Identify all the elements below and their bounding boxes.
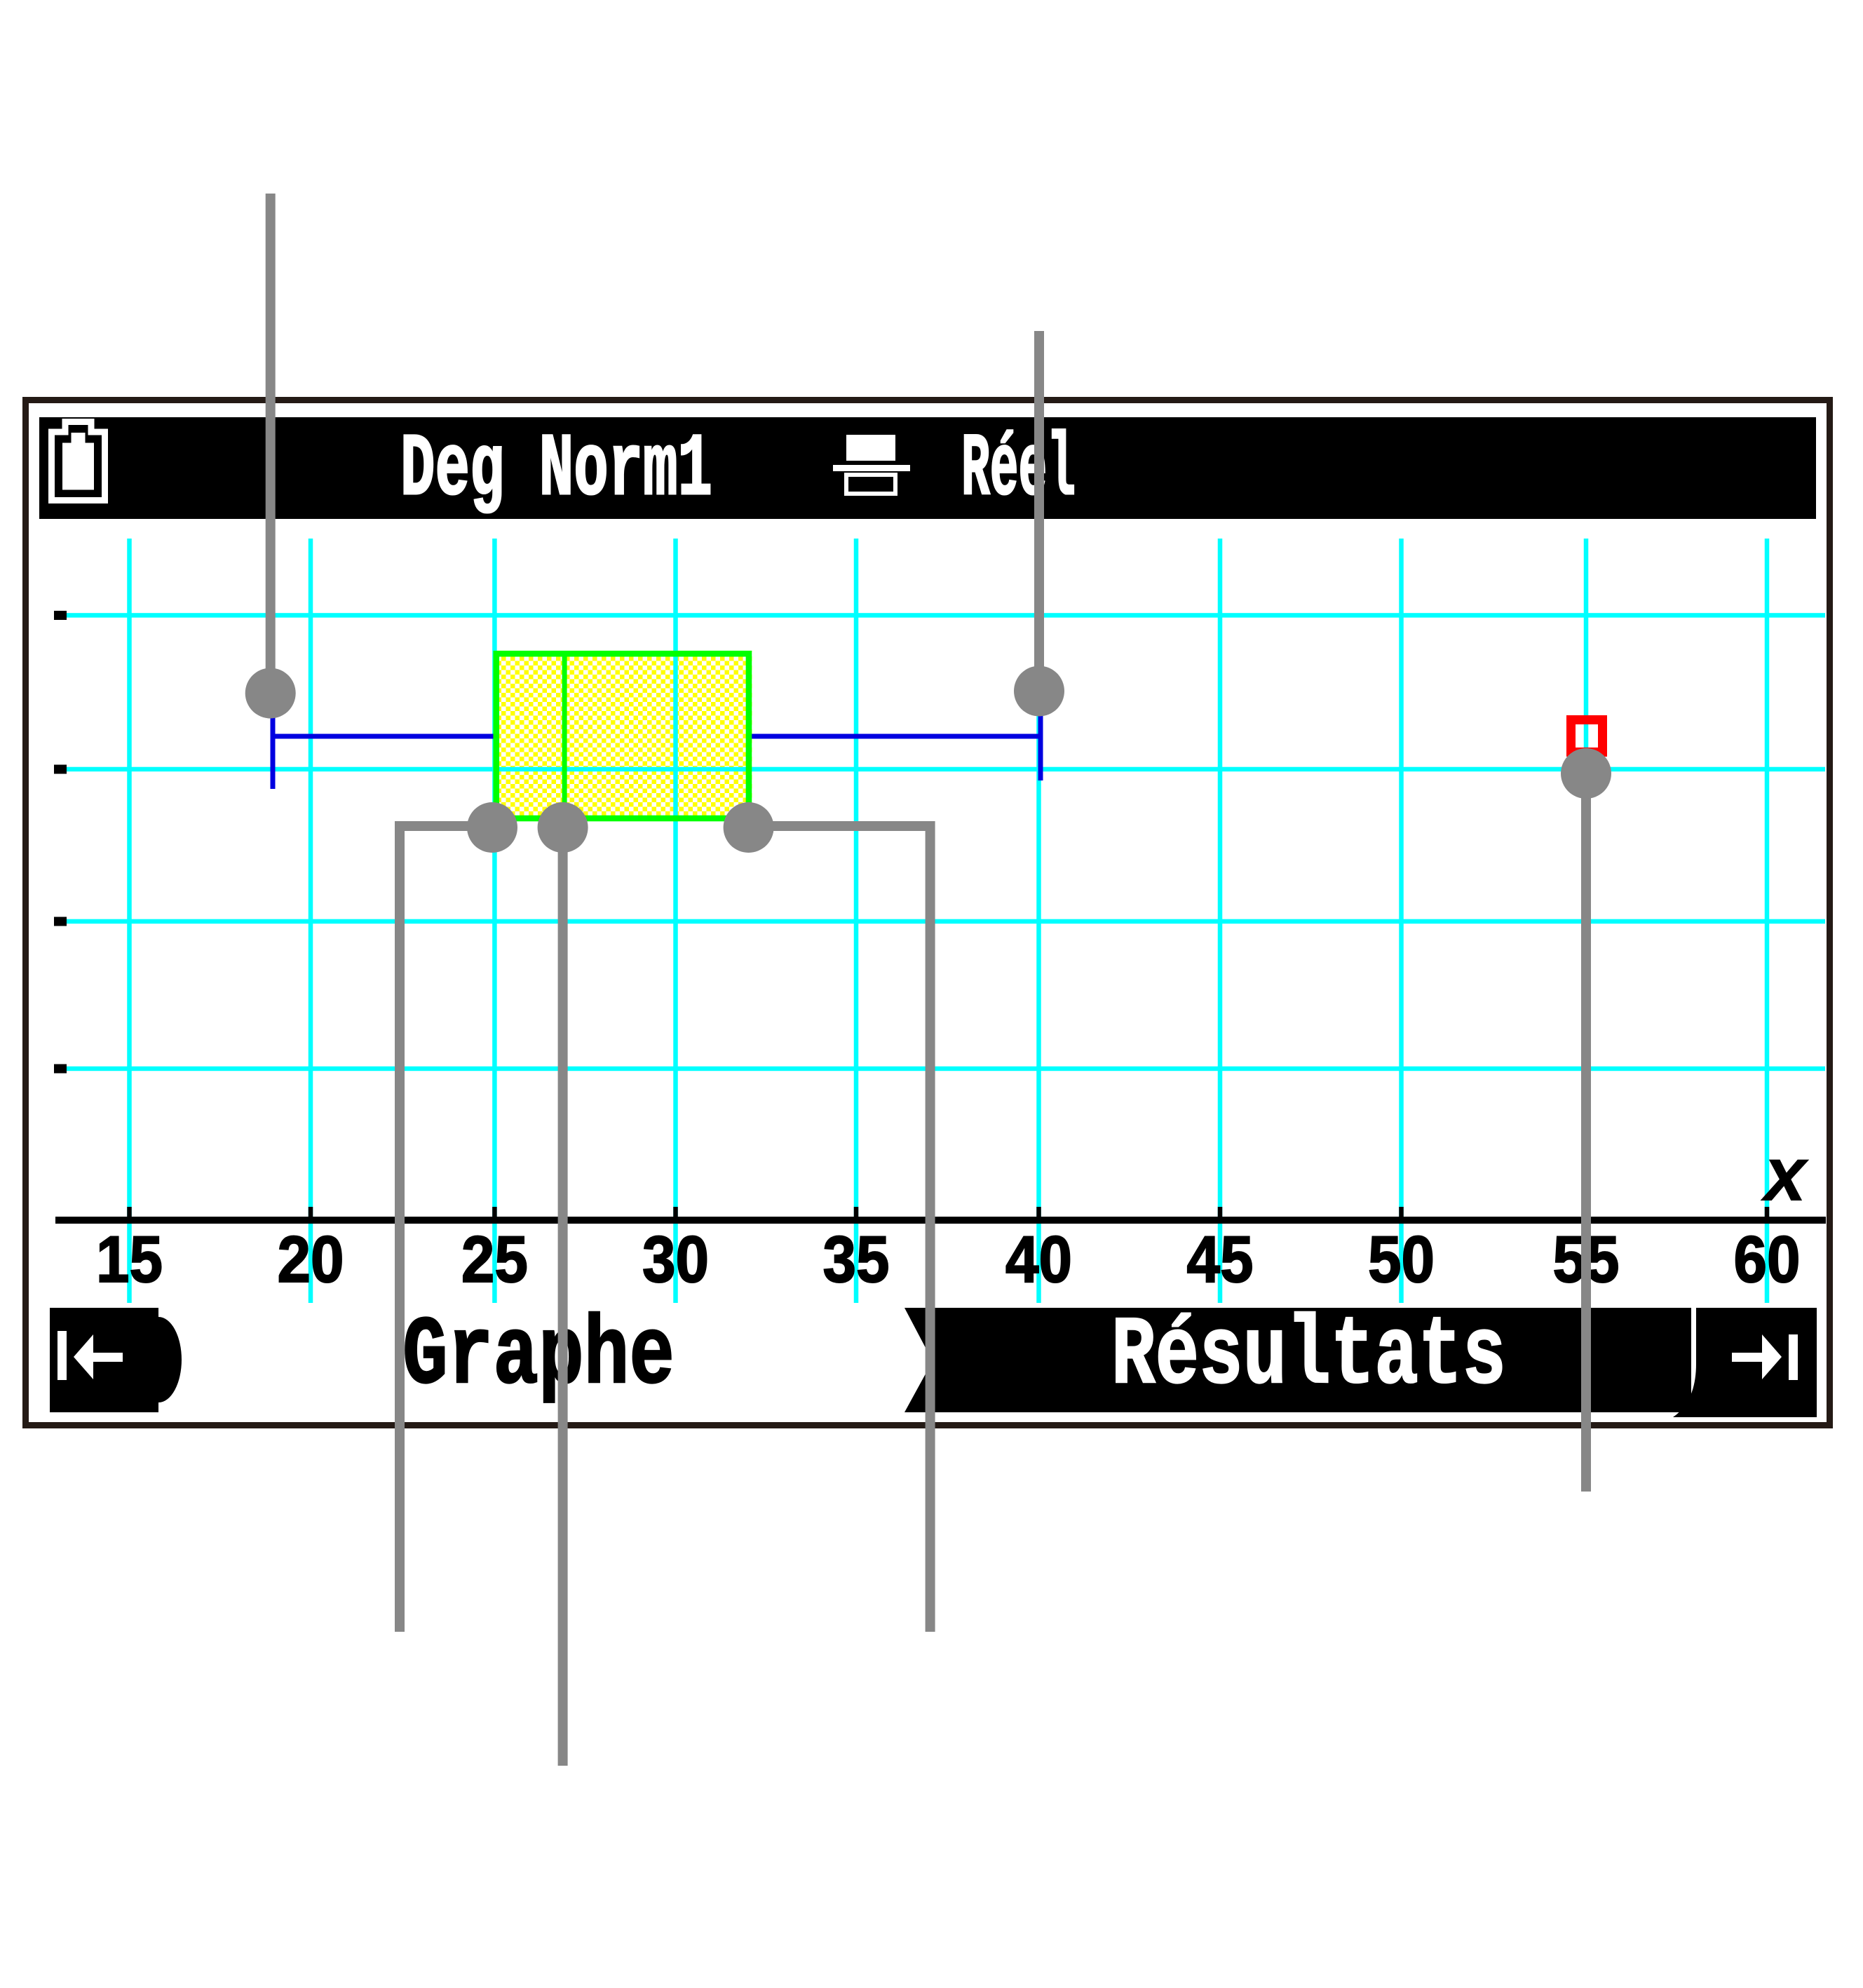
svg-text:40: 40 [1005, 1222, 1072, 1296]
svg-text:15: 15 [96, 1222, 163, 1296]
svg-text:Résultats: Résultats [1111, 1302, 1506, 1412]
svg-text:20: 20 [278, 1222, 344, 1296]
svg-text:35: 35 [823, 1222, 890, 1296]
svg-text:30: 30 [642, 1222, 709, 1296]
svg-text:60: 60 [1734, 1222, 1801, 1296]
svg-text:Réel: Réel [961, 420, 1076, 520]
svg-text:50: 50 [1368, 1222, 1435, 1296]
svg-text:45: 45 [1187, 1222, 1254, 1296]
svg-text:Graphe: Graphe [402, 1302, 675, 1412]
svg-text:x: x [1760, 1131, 1809, 1217]
svg-text:25: 25 [461, 1222, 528, 1296]
svg-text:Deg Norm1: Deg Norm1 [400, 420, 712, 520]
